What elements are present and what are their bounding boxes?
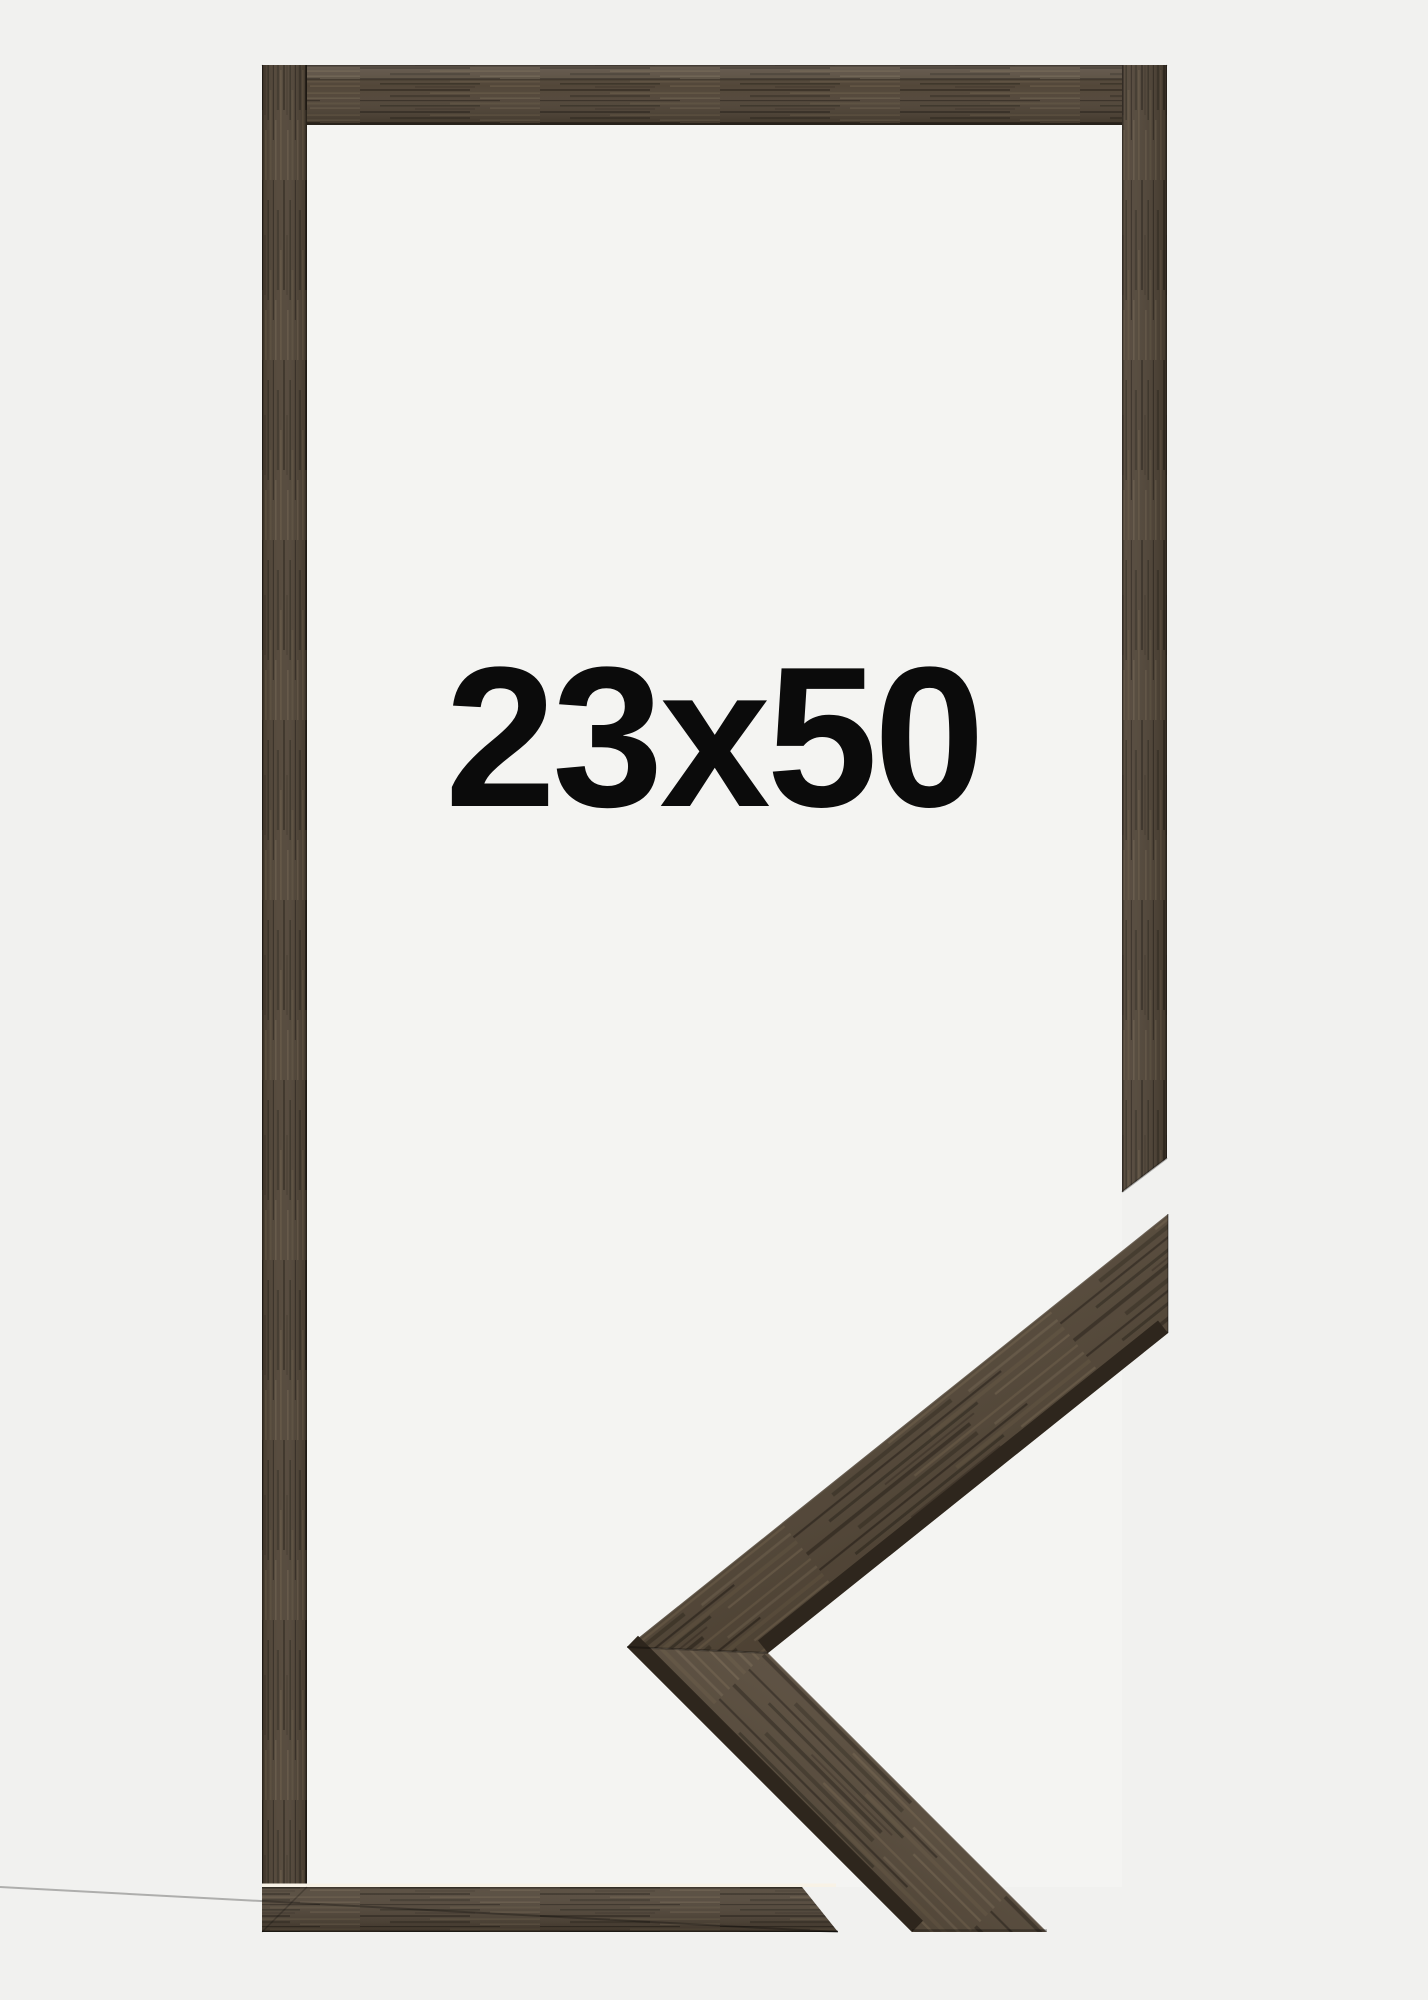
frame-left-bar — [262, 65, 307, 1932]
frame-right-bar — [1122, 65, 1167, 1192]
frame-top-bar — [262, 65, 1167, 125]
product-image: 23x50 — [0, 0, 1428, 2000]
bottom-bar-edge-highlight — [262, 1884, 836, 1888]
frame-product-visualization: 23x50 — [0, 0, 1428, 2000]
size-label: 23x50 — [445, 626, 981, 849]
